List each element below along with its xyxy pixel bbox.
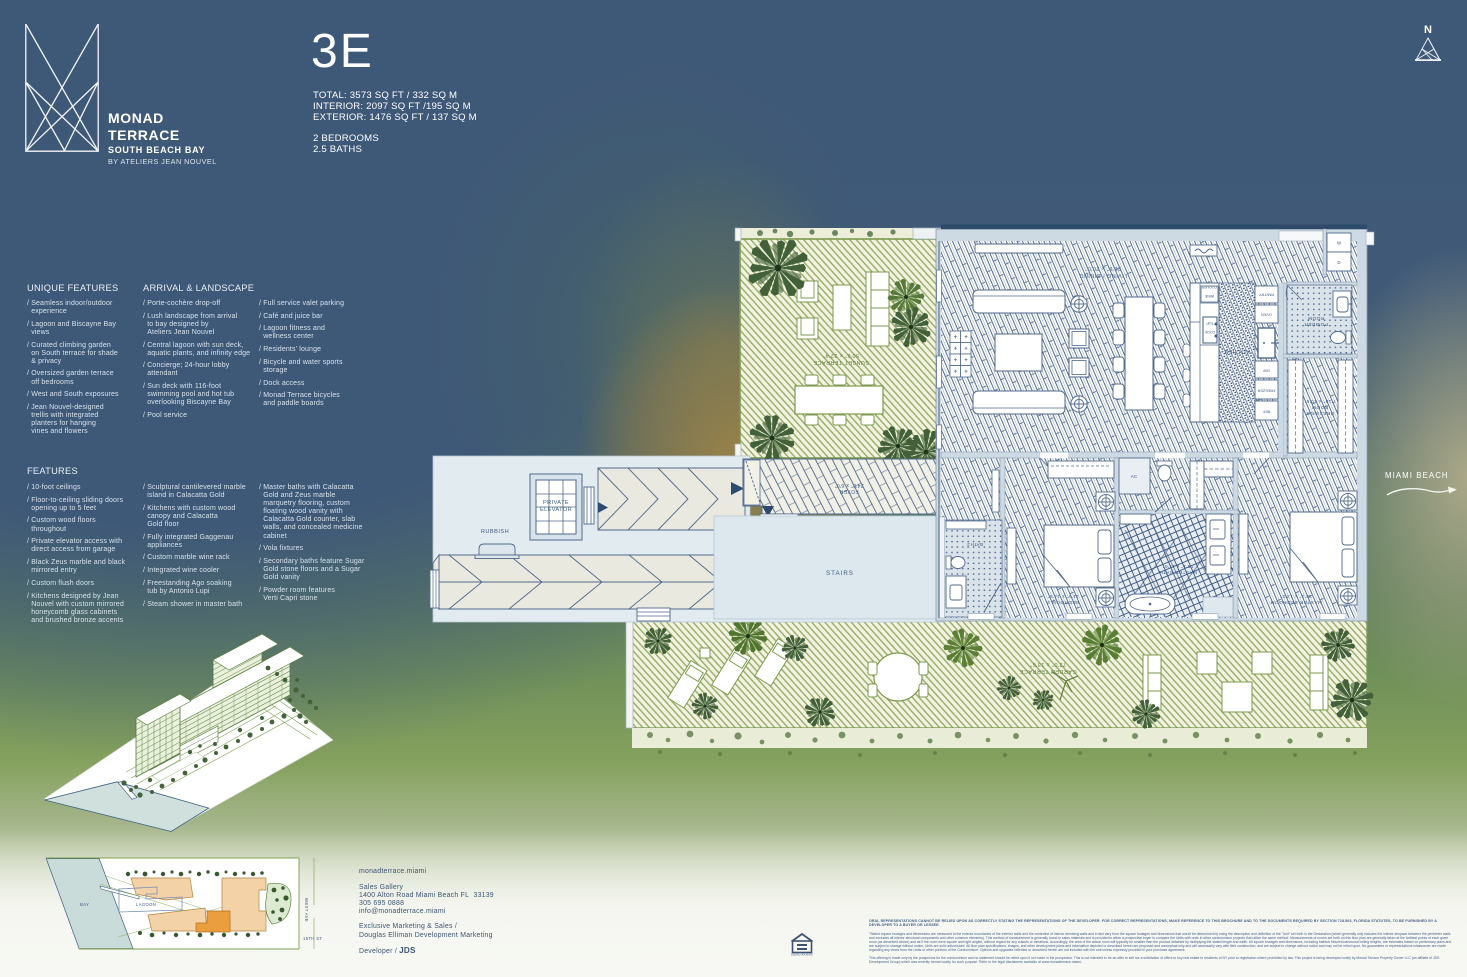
- svg-text:24'0" x 6'0": 24'0" x 6'0": [834, 482, 863, 488]
- svg-text:ELEVATOR: ELEVATOR: [540, 507, 572, 513]
- svg-text:EQUAL HOUSING: EQUAL HOUSING: [791, 953, 813, 956]
- svg-text:72'0" x 13'6": 72'0" x 13'6": [1030, 661, 1066, 667]
- svg-text:DRESSING: DRESSING: [1306, 410, 1334, 416]
- svg-text:WEST AVE: WEST AVE: [304, 898, 309, 922]
- svg-text:SUNSET TERRACE: SUNSET TERRACE: [813, 359, 869, 365]
- svg-text:BAY: BAY: [80, 902, 89, 907]
- svg-text:COOLER: COOLER: [1202, 285, 1218, 289]
- svg-text:LAGOON: LAGOON: [136, 902, 156, 907]
- svg-text:BATH 2: BATH 2: [967, 542, 983, 547]
- svg-text:RUBBISH: RUBBISH: [481, 529, 509, 535]
- svg-text:KITCHEN: KITCHEN: [1224, 348, 1249, 354]
- svg-text:MASTER BEDROOM: MASTER BEDROOM: [1270, 599, 1322, 605]
- svg-text:50'6" x 32'4": 50'6" x 32'4": [823, 352, 859, 358]
- svg-text:AC: AC: [1131, 474, 1138, 479]
- svg-text:7'10" x 10'6": 7'10" x 10'6": [1304, 398, 1336, 404]
- svg-text:REF: REF: [1262, 409, 1270, 413]
- svg-text:GARDEN TERRACE: GARDEN TERRACE: [1019, 668, 1076, 674]
- svg-text:FREEZER: FREEZER: [1257, 388, 1275, 392]
- svg-text:N: N: [1424, 24, 1432, 36]
- svg-text:22'1" x 13'0": 22'1" x 13'0": [1280, 593, 1312, 599]
- svg-text:D: D: [1337, 260, 1340, 265]
- svg-text:ROOM: ROOM: [1308, 315, 1325, 321]
- svg-text:26'6" x 20'0": 26'6" x 20'0": [1085, 265, 1121, 271]
- svg-text:DW: DW: [1263, 368, 1270, 372]
- svg-text:ROOM: ROOM: [1312, 404, 1329, 410]
- svg-text:WINE: WINE: [1204, 294, 1214, 298]
- svg-text:PRIVATE: PRIVATE: [543, 500, 569, 506]
- svg-text:PANTRY: PANTRY: [1259, 292, 1275, 296]
- svg-text:W: W: [1337, 241, 1341, 246]
- svg-text:15'1" x 11'6": 15'1" x 11'6": [1162, 563, 1193, 569]
- svg-text:11'6" x 14'5": 11'6" x 14'5": [1047, 593, 1078, 599]
- svg-text:TOP: TOP: [1206, 321, 1214, 325]
- svg-text:POWDER: POWDER: [1304, 321, 1328, 327]
- svg-text:OVEN: OVEN: [1261, 312, 1272, 316]
- svg-text:BEDROOM 2: BEDROOM 2: [1047, 599, 1079, 605]
- svg-text:COOK: COOK: [1204, 330, 1215, 334]
- svg-text:MASTER BATH: MASTER BATH: [1159, 569, 1197, 575]
- svg-text:LIVING / DINING: LIVING / DINING: [1079, 272, 1128, 278]
- svg-text:STAIRS: STAIRS: [826, 570, 854, 577]
- svg-text:15TH ST: 15TH ST: [303, 936, 322, 941]
